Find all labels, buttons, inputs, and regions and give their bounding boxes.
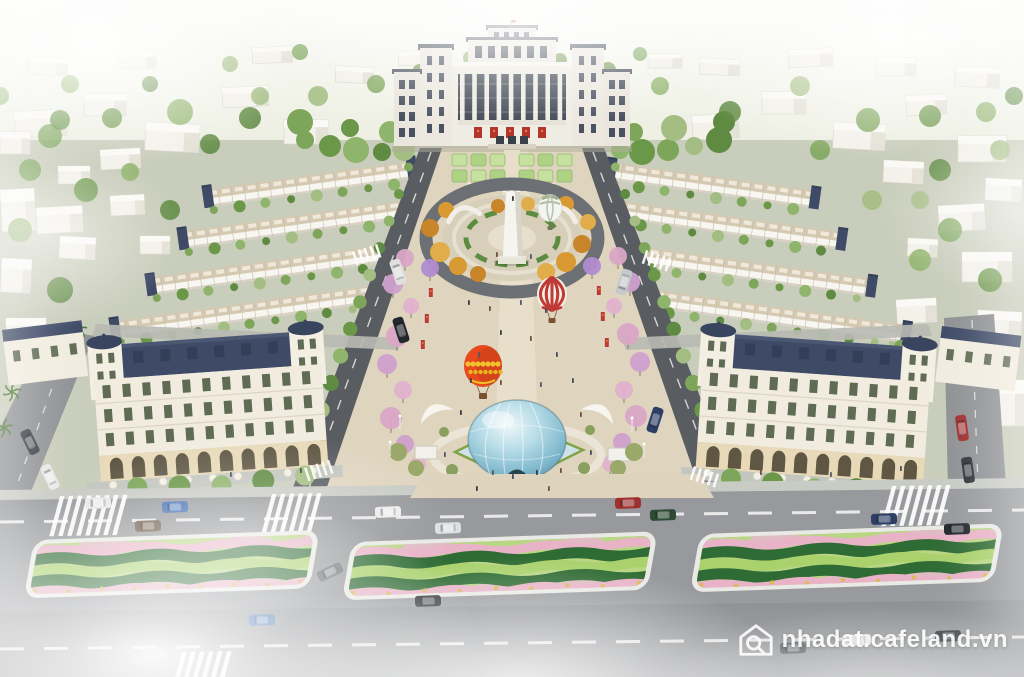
car: [871, 513, 897, 525]
car: [780, 642, 806, 654]
car: [135, 520, 161, 532]
pedestrian: [489, 306, 491, 311]
pedestrian: [460, 410, 462, 415]
car: [435, 522, 461, 534]
pedestrian: [160, 470, 162, 475]
pedestrian: [830, 472, 832, 477]
pedestrian: [900, 466, 902, 471]
pedestrian: [478, 352, 480, 357]
car: [944, 523, 970, 535]
car: [935, 630, 961, 642]
pedestrian: [300, 468, 302, 473]
pedestrian: [580, 412, 582, 417]
pedestrian: [476, 486, 478, 491]
pedestrian: [590, 450, 592, 455]
pedestrian: [492, 470, 494, 475]
pedestrian: [496, 252, 498, 257]
corner-shophouse-left: [77, 318, 344, 505]
pedestrian: [556, 352, 558, 357]
pedestrian: [512, 474, 514, 479]
pedestrian: [468, 300, 470, 305]
car: [162, 501, 188, 513]
car: [415, 595, 441, 607]
pedestrian: [540, 382, 542, 387]
pedestrian: [500, 380, 502, 385]
car: [650, 509, 676, 521]
pedestrian: [444, 452, 446, 457]
pedestrian: [500, 330, 502, 335]
car: [85, 497, 111, 509]
pedestrian: [560, 468, 562, 473]
pedestrian: [512, 196, 514, 201]
pedestrian: [536, 470, 538, 475]
pedestrian: [572, 378, 574, 383]
render-scene: [0, 0, 1024, 677]
pedestrian: [530, 254, 532, 259]
pedestrian: [545, 308, 547, 313]
pedestrian: [760, 470, 762, 475]
pedestrian: [548, 486, 550, 491]
car: [615, 497, 641, 509]
car: [249, 614, 275, 626]
car: [375, 506, 401, 518]
aerial-render-image: Batdongsan by PropertyGuru nhadat.cafela…: [0, 0, 1024, 677]
pedestrian: [230, 472, 232, 477]
pedestrian: [530, 336, 532, 341]
corner-shophouse-right: [680, 320, 947, 507]
pedestrian: [520, 300, 522, 305]
car: [845, 634, 871, 646]
pedestrian: [470, 378, 472, 383]
